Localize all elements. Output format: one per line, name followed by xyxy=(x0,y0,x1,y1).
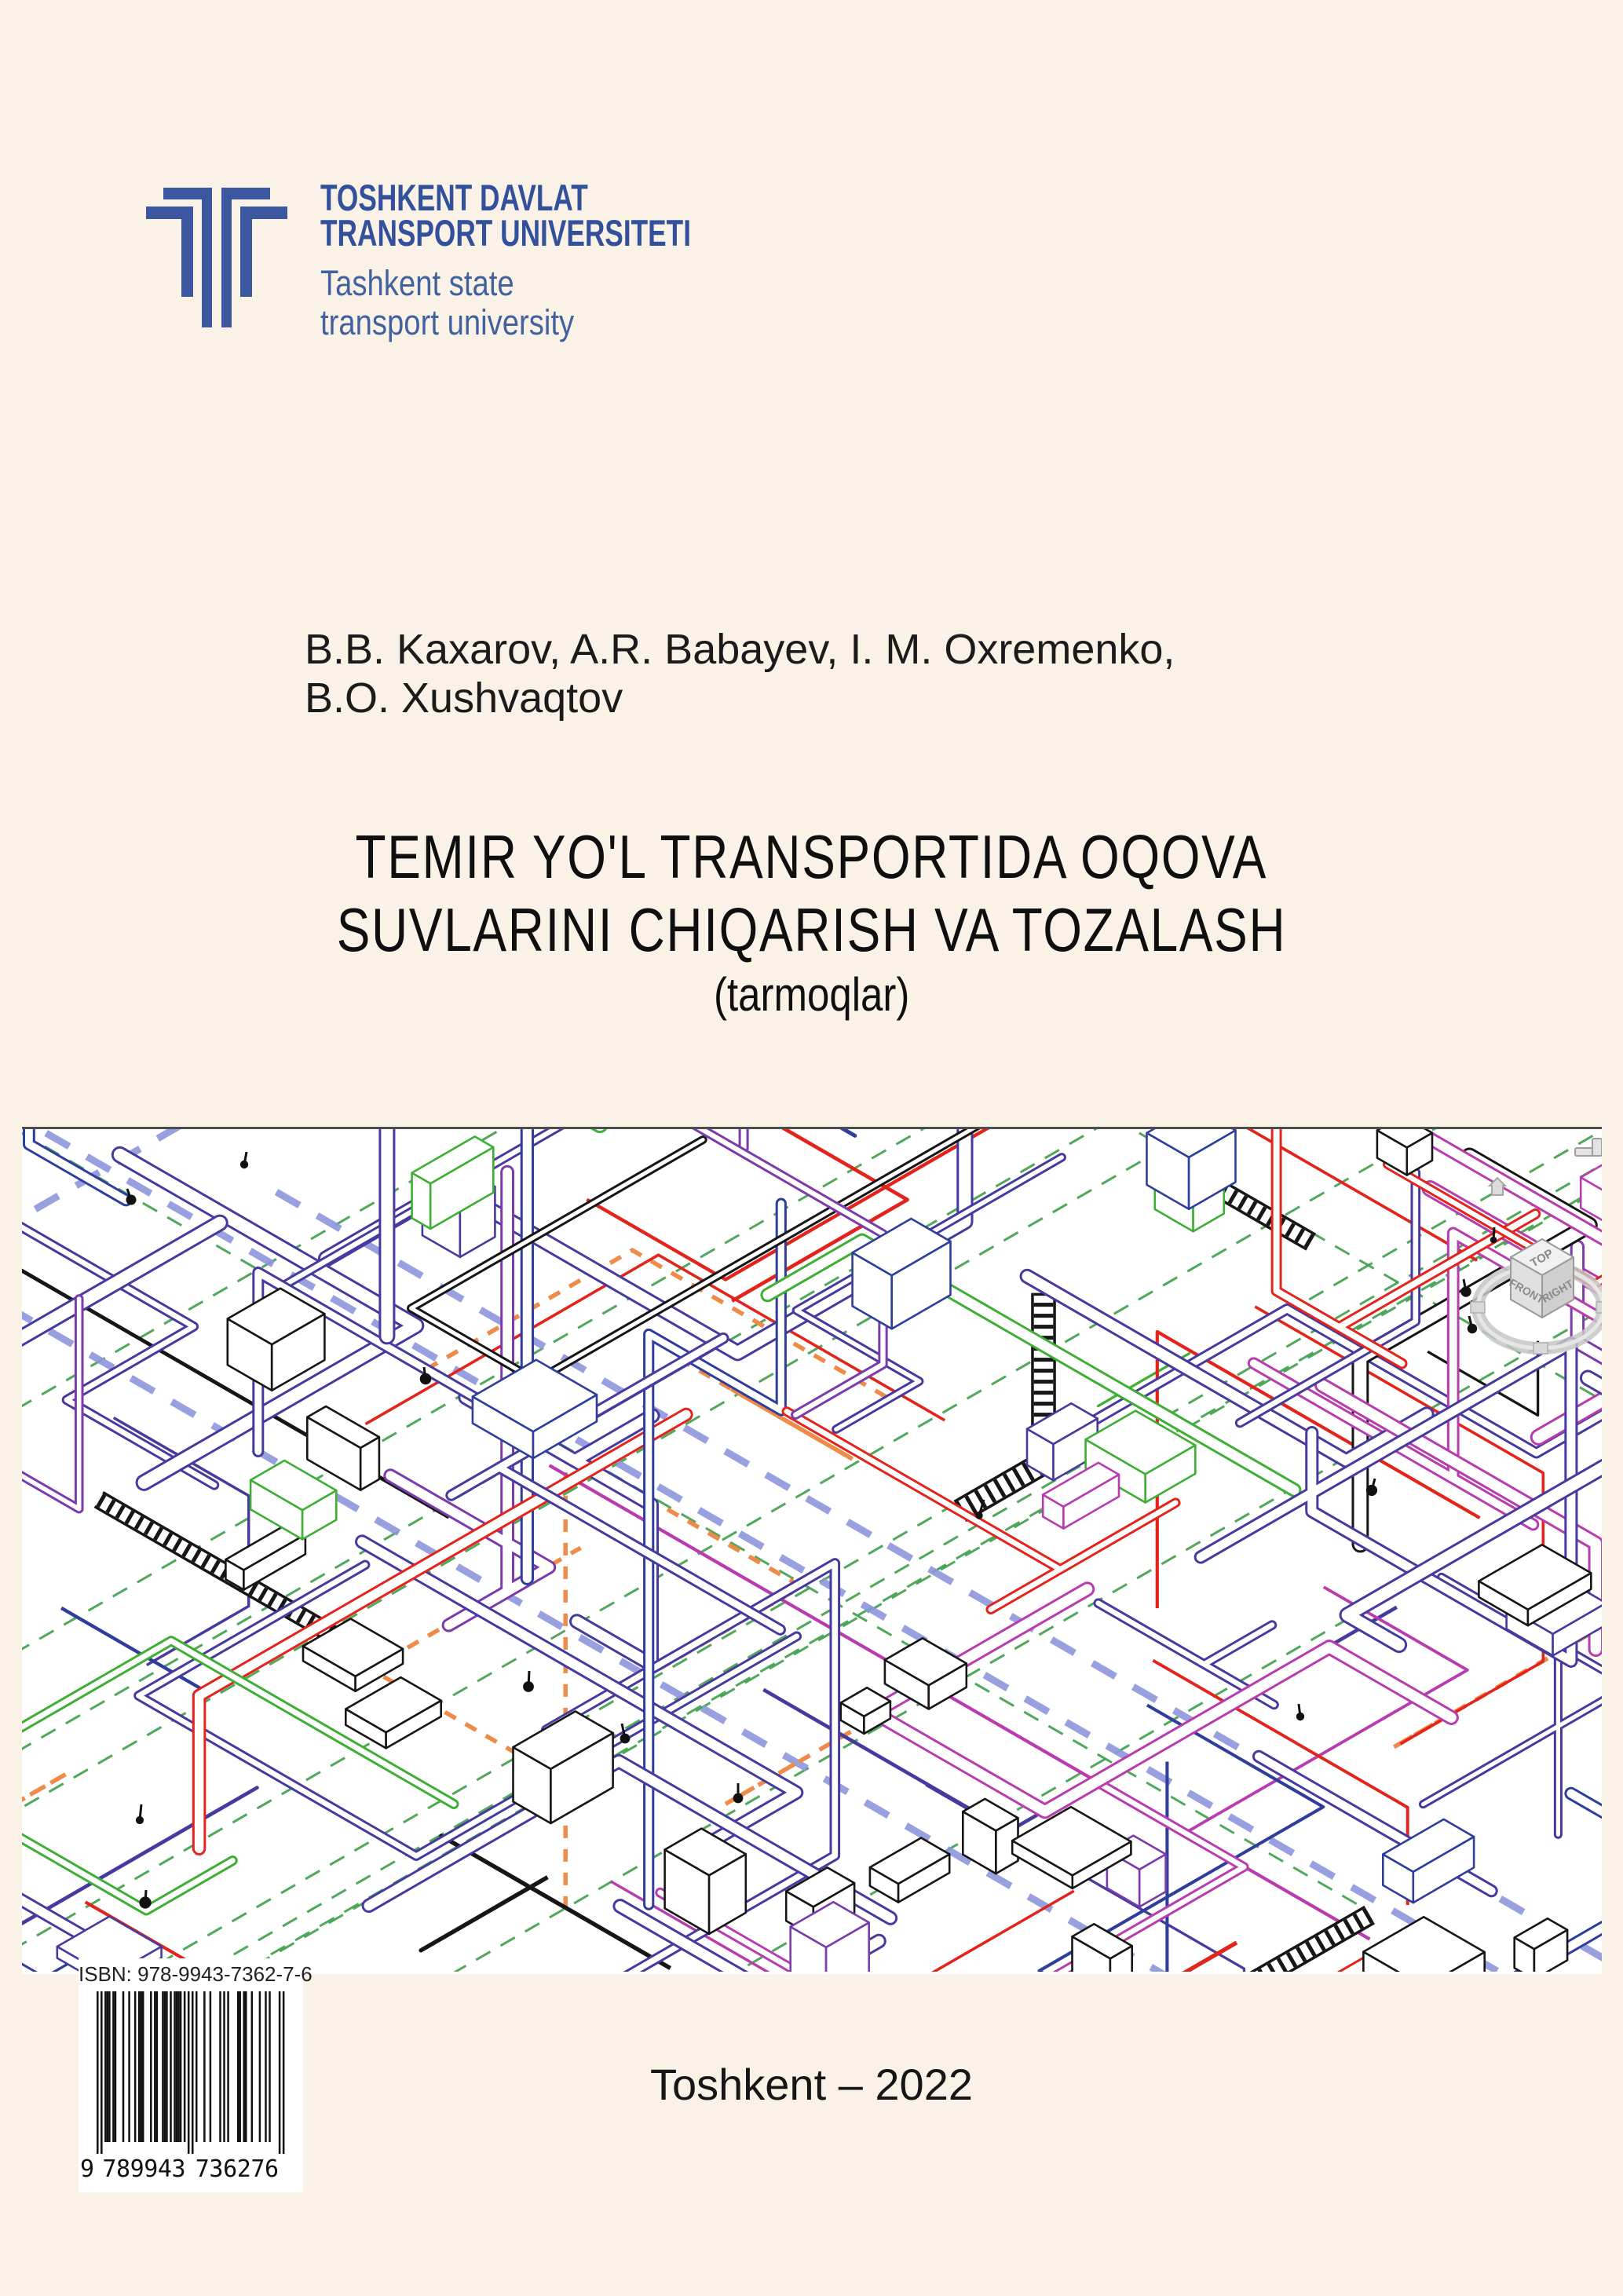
svg-text:7: 7 xyxy=(250,2155,265,2183)
isbn-label: ISBN: 978-9943-7362-7-6 xyxy=(79,1962,303,1987)
university-name-line2: TRANSPORT UNIVERSITETI xyxy=(320,215,691,250)
svg-text:3: 3 xyxy=(172,2155,186,2183)
logo-right-arm xyxy=(240,207,287,297)
university-name-line1: TOSHKENT DAVLAT xyxy=(320,180,588,215)
svg-text:3: 3 xyxy=(209,2155,223,2183)
title-line1: TEMIR YO'L TRANSPORTIDA OQOVA xyxy=(356,821,1268,894)
isbn-barcode: 9789943736276 xyxy=(79,1991,303,2188)
svg-text:8: 8 xyxy=(116,2155,130,2183)
isbn-box: ISBN: 978-9943-7362-7-6 9789943736276 xyxy=(79,1958,303,2192)
university-name-en: Tashkent state transport university xyxy=(320,264,619,342)
authors-line2: B.O. Xushvaqtov xyxy=(305,674,1175,722)
logo-left-arm xyxy=(146,207,193,297)
university-name-en-line2: transport university xyxy=(320,303,574,342)
svg-text:7: 7 xyxy=(196,2155,210,2183)
authors-line1: B.B. Kaxarov, A.R. Babayev, I. M. Oxreme… xyxy=(305,625,1175,674)
svg-text:4: 4 xyxy=(158,2155,172,2183)
book-cover: TOSHKENT DAVLAT TRANSPORT UNIVERSITETI T… xyxy=(0,0,1623,2296)
authors: B.B. Kaxarov, A.R. Babayev, I. M. Oxreme… xyxy=(305,625,1175,722)
window-glyph xyxy=(1592,1139,1602,1156)
university-logo xyxy=(146,186,287,328)
book-title: TEMIR YO'L TRANSPORTIDA OQOVA SUVLARINI … xyxy=(0,821,1623,967)
university-name-en-line1: Tashkent state xyxy=(320,264,514,303)
svg-text:7: 7 xyxy=(102,2155,116,2183)
svg-text:9: 9 xyxy=(130,2155,144,2183)
svg-text:2: 2 xyxy=(237,2155,251,2183)
book-subtitle: (tarmoqlar) xyxy=(0,967,1623,1022)
piping-isometric-drawing: TOPFRONTRIGHT xyxy=(22,1129,1602,1972)
technical-drawing-panel: TOPFRONTRIGHT xyxy=(22,1127,1602,1974)
svg-text:6: 6 xyxy=(265,2155,279,2183)
svg-text:9: 9 xyxy=(80,2155,94,2183)
svg-text:6: 6 xyxy=(223,2155,237,2183)
title-line2: SUVLARINI CHIQARISH VA TOZALASH xyxy=(337,894,1287,967)
svg-text:9: 9 xyxy=(144,2155,158,2183)
university-name-uz: TOSHKENT DAVLAT TRANSPORT UNIVERSITETI xyxy=(320,180,814,250)
